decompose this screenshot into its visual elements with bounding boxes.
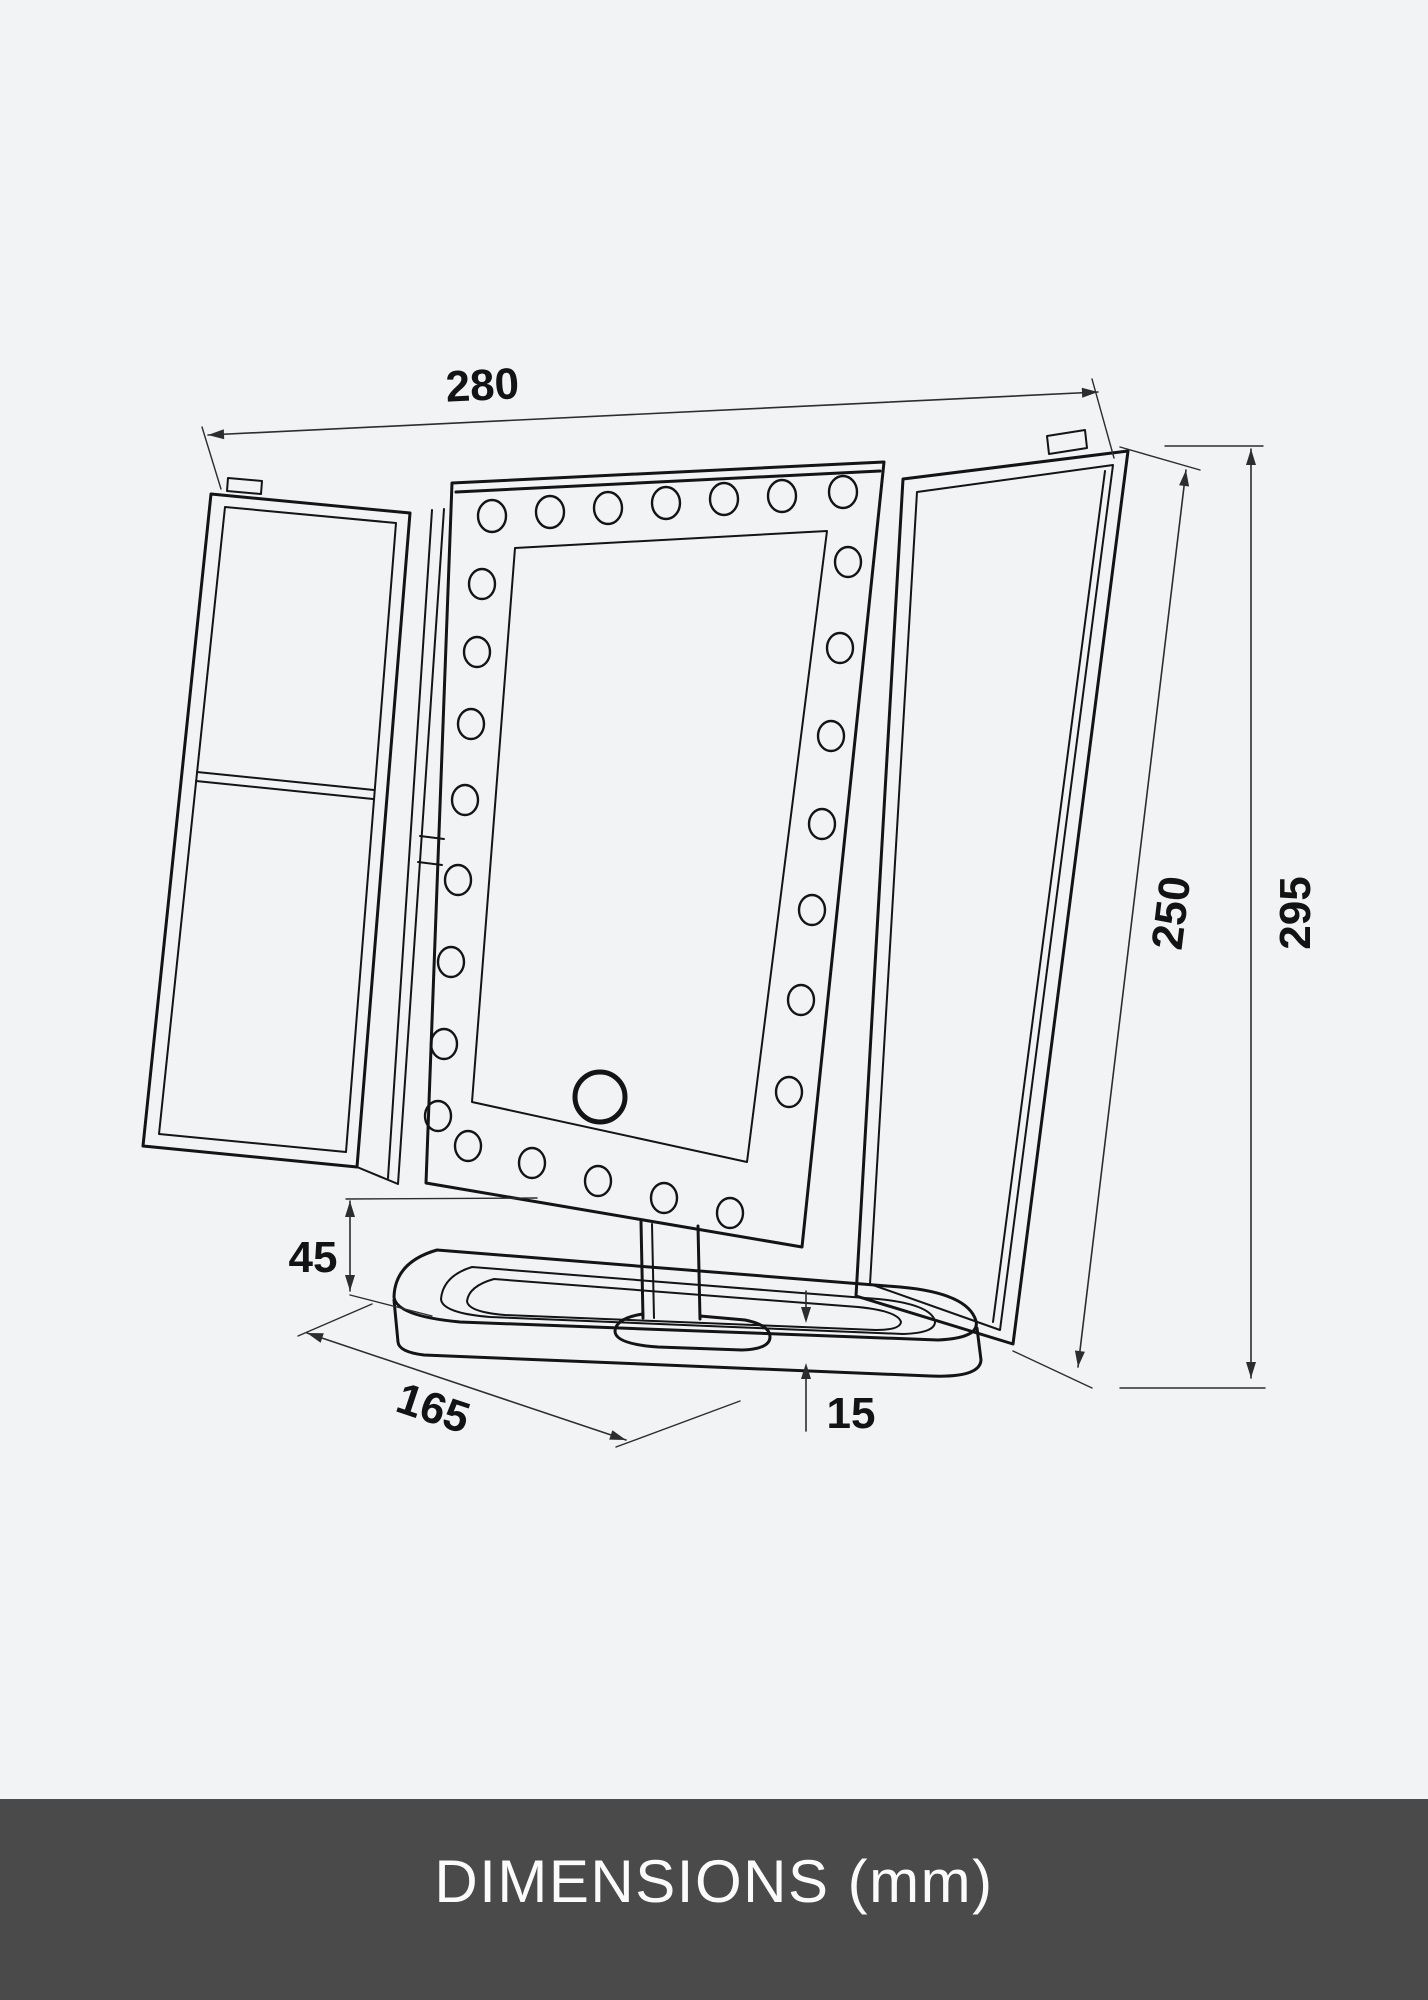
- power-button-mark: [575, 1072, 625, 1122]
- center-mirror-panel: [425, 462, 884, 1247]
- mirror-base: [394, 1222, 981, 1376]
- dimension-label-stand-height: 45: [289, 1233, 338, 1282]
- dimension-label-top-width: 280: [444, 359, 520, 412]
- dimension-drawing: 280 250 295 45 165: [0, 0, 1428, 1799]
- dimension-label-overall-height: 295: [1271, 876, 1320, 949]
- right-hinge-pin: [1047, 430, 1087, 454]
- dimension-panel-height: 250: [1013, 447, 1200, 1388]
- dimension-label-base-thickness: 15: [827, 1389, 876, 1438]
- led-lights: [425, 476, 861, 1228]
- dimension-label-panel-height: 250: [1143, 874, 1201, 953]
- right-mirror-panel: [856, 430, 1128, 1344]
- left-panel-divider: [196, 781, 373, 799]
- left-mirror-panel: [143, 478, 444, 1184]
- left-hinge-pin: [227, 478, 262, 494]
- dimension-label-base-depth: 165: [391, 1374, 476, 1444]
- dimension-base-thickness: 15: [801, 1291, 875, 1438]
- left-panel-divider: [197, 772, 374, 790]
- dimension-stand-height: 45: [289, 1198, 537, 1316]
- footer-bar: DIMENSIONS (mm): [0, 1799, 1428, 2000]
- footer-title: DIMENSIONS (mm): [434, 1847, 993, 1916]
- mirror-technical-drawing: 280 250 295 45 165: [0, 0, 1428, 1799]
